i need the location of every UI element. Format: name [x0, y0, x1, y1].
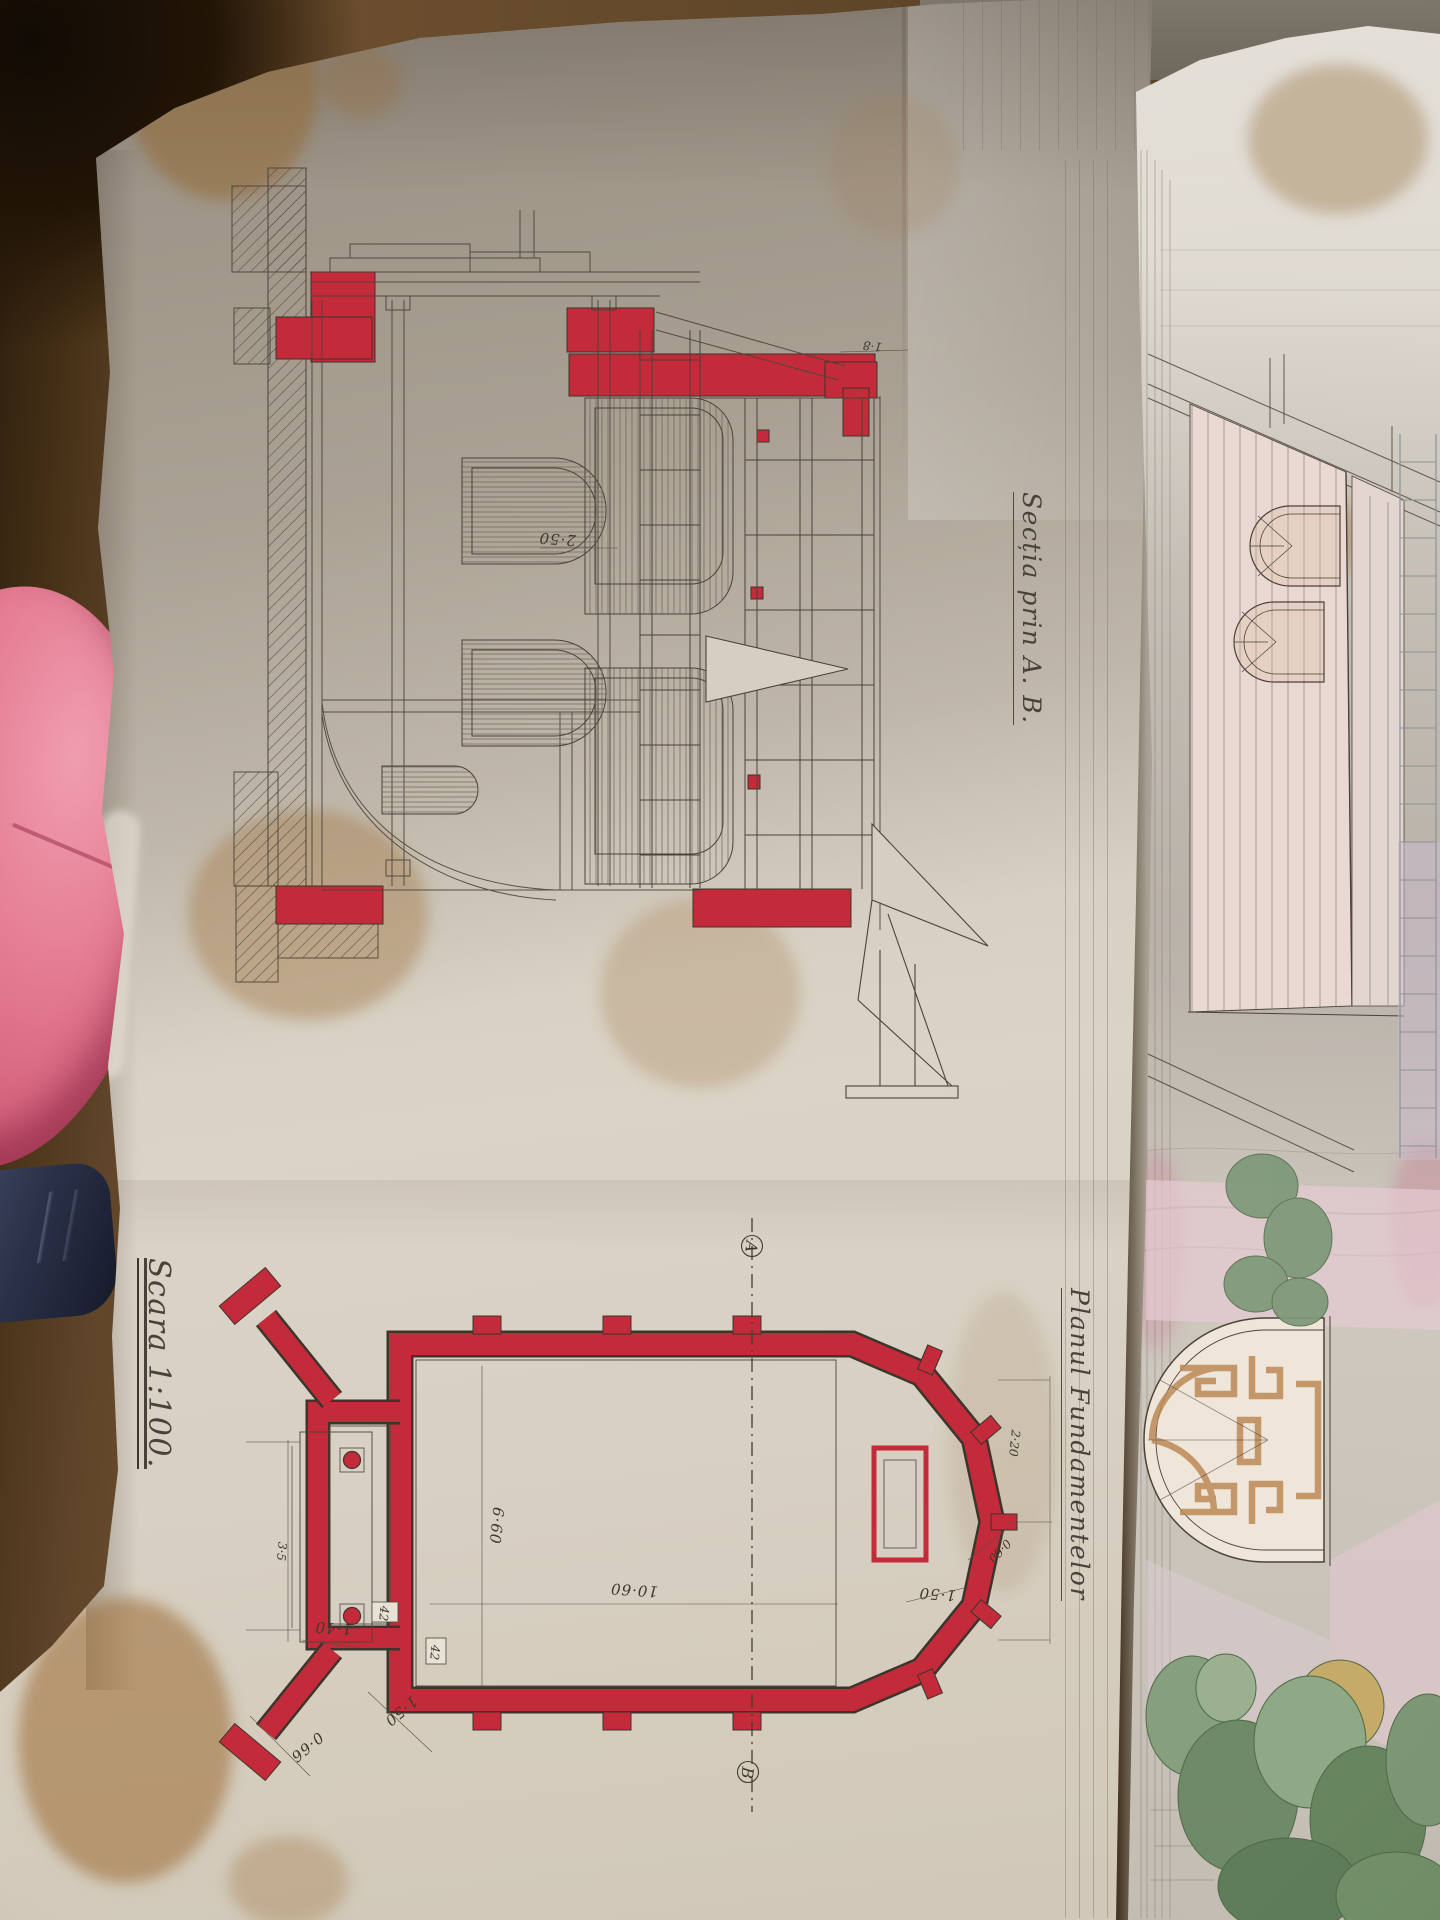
section-marker-a: A — [741, 1238, 761, 1253]
dim-nave-width: 6·60 — [486, 1506, 508, 1545]
dim-apse-depth: 2·20 — [1006, 1428, 1023, 1457]
plan-title: Planul Fundamentelor — [1061, 1288, 1094, 1601]
dim-nave-length: 10·60 — [609, 1579, 658, 1600]
tower-wall — [1188, 404, 1404, 1016]
plan-dim-leaders — [250, 1366, 1052, 1776]
rose-window — [1144, 1316, 1330, 1566]
plan-porch-columns — [344, 1452, 361, 1625]
dim-apse-side: 1·50 — [918, 1584, 957, 1605]
floor-plan-drawing: A B 42 42 10·60 — [220, 1190, 1080, 1850]
section-drawing: 2·50 1·8 — [220, 150, 1070, 1150]
section-foundation-red — [276, 272, 877, 927]
dim-porch-width: 3·5 — [274, 1541, 290, 1561]
photo-scene: 2·50 1·8 — [0, 0, 1440, 1920]
dim-vault-height: 2·50 — [538, 529, 578, 550]
stain — [322, 48, 402, 118]
scale-label: Scara 1:100. — [137, 1258, 176, 1469]
plan-altar — [874, 1448, 926, 1560]
plan-walls — [266, 1318, 992, 1732]
dim-wall-b: 42 — [427, 1643, 443, 1661]
section-marker-b: B — [737, 1765, 757, 1780]
stain — [18, 1598, 233, 1883]
dim-cornice: 1·8 — [862, 338, 883, 354]
dim-porch-depth: 1·40 — [314, 1618, 353, 1639]
lower-eaves — [1148, 1054, 1354, 1172]
elevation-drawing — [1125, 140, 1440, 1920]
fabric-patch — [0, 1161, 120, 1324]
section-title: Secția prin A. B. — [1013, 492, 1046, 725]
dim-wing-width: 0·66 — [287, 1728, 327, 1766]
dim-wall-a: 42 — [376, 1604, 392, 1622]
corner-sheet-lines — [945, 0, 1140, 150]
section-roof-spire — [706, 636, 988, 1098]
